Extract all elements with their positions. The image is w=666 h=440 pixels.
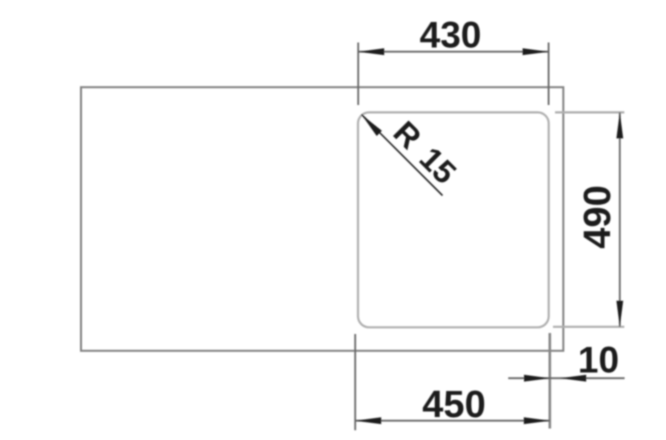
svg-text:490: 490 <box>577 185 619 248</box>
svg-text:450: 450 <box>422 384 485 426</box>
svg-text:R 15: R 15 <box>387 114 464 191</box>
svg-text:10: 10 <box>578 339 619 380</box>
svg-text:430: 430 <box>420 15 482 56</box>
